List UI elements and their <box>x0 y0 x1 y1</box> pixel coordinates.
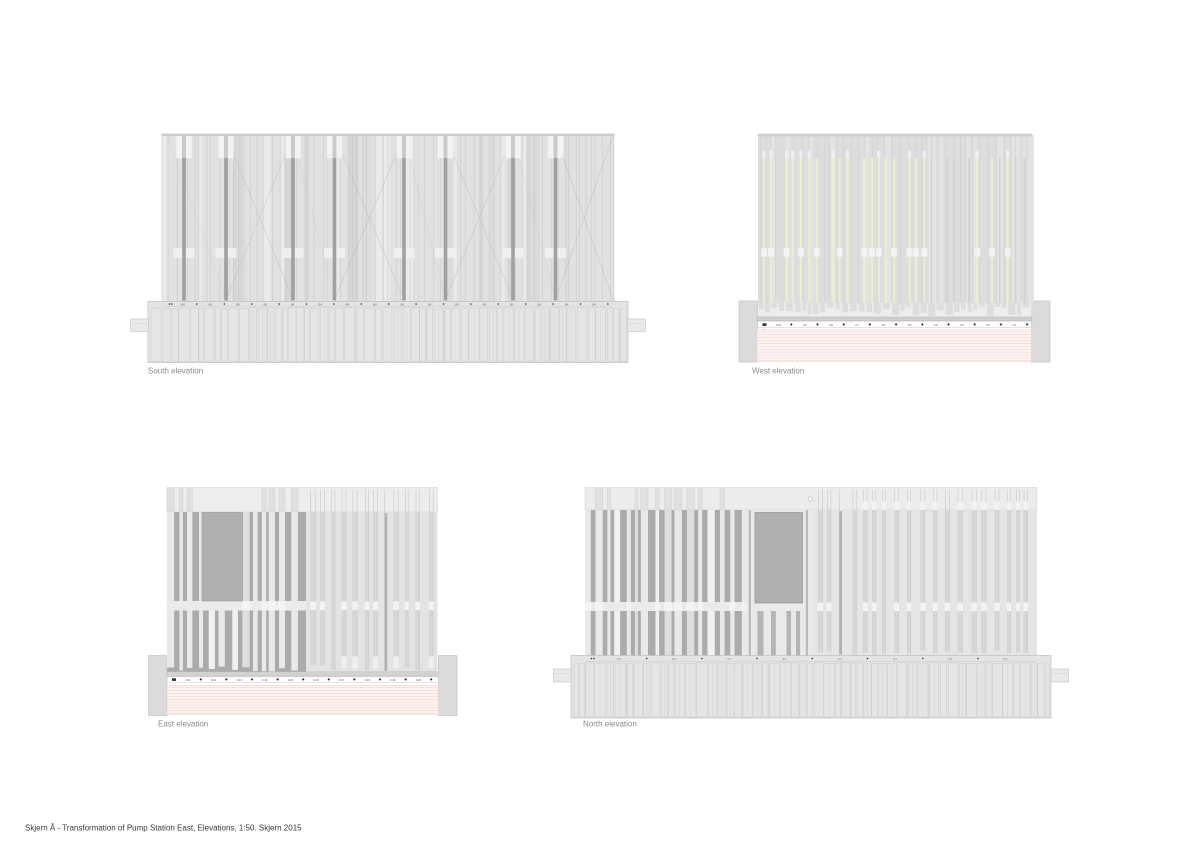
svg-text:Ø4: Ø4 <box>400 302 404 306</box>
svg-text:C10: C10 <box>776 323 782 327</box>
svg-text:Ø4: Ø4 <box>592 302 596 306</box>
svg-text:C5: C5 <box>908 323 912 327</box>
svg-text:South elevation: South elevation <box>148 366 203 375</box>
svg-text:C16: C16 <box>313 678 319 682</box>
svg-text:C11: C11 <box>186 678 191 682</box>
svg-text:Ø4: Ø4 <box>483 302 487 306</box>
svg-text:C13: C13 <box>237 678 243 682</box>
svg-text:C9: C9 <box>803 323 807 327</box>
svg-text:C3: C3 <box>960 323 964 327</box>
svg-text:Ø4: Ø4 <box>236 302 240 306</box>
svg-text:0-1: 0-1 <box>893 657 897 661</box>
svg-text:Ø4: Ø4 <box>209 302 213 306</box>
svg-text:C20: C20 <box>416 678 422 682</box>
svg-text:C2: C2 <box>986 323 990 327</box>
svg-text:C4: C4 <box>934 323 938 327</box>
svg-text:Ø4: Ø4 <box>373 302 377 306</box>
svg-text:C1: C1 <box>1013 323 1017 327</box>
svg-text:North elevation: North elevation <box>583 720 637 729</box>
svg-text:Ø4: Ø4 <box>455 302 459 306</box>
svg-text:C17: C17 <box>339 678 345 682</box>
svg-text:Ø4: Ø4 <box>318 302 322 306</box>
svg-text:C19: C19 <box>390 678 396 682</box>
svg-text:Ø4: Ø4 <box>291 302 295 306</box>
svg-text:0-1: 0-1 <box>672 657 676 661</box>
svg-text:0-1: 0-1 <box>617 657 621 661</box>
svg-text:Ø4: Ø4 <box>346 302 350 306</box>
svg-text:Ø4: Ø4 <box>428 302 432 306</box>
svg-text:C15: C15 <box>288 678 294 682</box>
svg-text:0-1: 0-1 <box>728 657 732 661</box>
svg-text:Ø4: Ø4 <box>510 302 514 306</box>
svg-text:C12: C12 <box>211 678 217 682</box>
svg-text:C14: C14 <box>262 678 268 682</box>
svg-text:0-1: 0-1 <box>1004 657 1008 661</box>
svg-text:East elevation: East elevation <box>158 720 208 729</box>
svg-text:Ø4: Ø4 <box>537 302 541 306</box>
svg-text:Ø4: Ø4 <box>263 302 267 306</box>
svg-text:0-1: 0-1 <box>783 657 787 661</box>
svg-text:Skjern Å - Transformation of P: Skjern Å - Transformation of Pump Statio… <box>25 824 302 833</box>
svg-text:West elevation: West elevation <box>752 366 804 375</box>
svg-text:0-1: 0-1 <box>838 657 842 661</box>
svg-text:0-1: 0-1 <box>948 657 952 661</box>
svg-text:C8: C8 <box>829 323 833 327</box>
svg-text:Ø4: Ø4 <box>565 302 569 306</box>
svg-text:C6: C6 <box>882 323 886 327</box>
svg-text:C18: C18 <box>365 678 371 682</box>
svg-text:C7: C7 <box>855 323 859 327</box>
svg-text:Ø4: Ø4 <box>181 302 185 306</box>
